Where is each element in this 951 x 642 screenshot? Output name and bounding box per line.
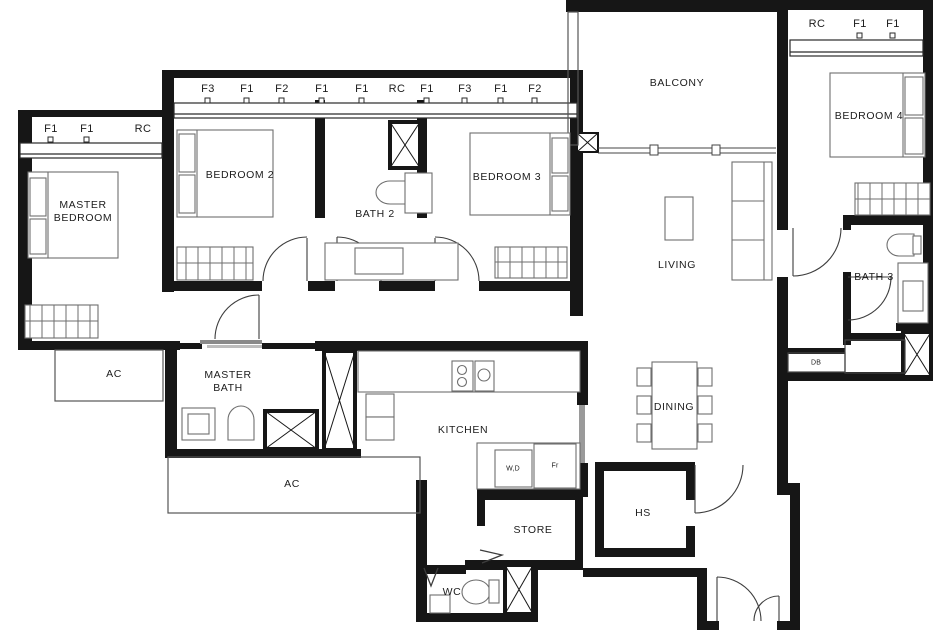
master-bath-sink-icon bbox=[182, 408, 215, 440]
floorplan-linework bbox=[0, 0, 951, 642]
bedroom3-wardrobe-icon bbox=[495, 247, 567, 278]
bedroom2-bed-icon bbox=[177, 130, 273, 217]
bath2-vanity-icon bbox=[405, 173, 432, 213]
master-bath-toilet-icon bbox=[228, 406, 254, 440]
floor-plan: MASTER BEDROOM BEDROOM 2 BATH 2 BEDROOM … bbox=[0, 0, 951, 642]
dining-table-icon bbox=[652, 362, 697, 449]
kitchen-counter-icon bbox=[358, 351, 580, 440]
washer-dryer-icon bbox=[477, 443, 580, 489]
bedroom4-wardrobe-icon bbox=[855, 183, 930, 215]
wc-basin-icon bbox=[430, 595, 450, 613]
bath3-vanity-icon bbox=[898, 263, 928, 323]
bedroom3-bed-icon bbox=[470, 133, 570, 215]
walls bbox=[18, 0, 933, 630]
sofa-icon bbox=[732, 162, 772, 280]
bedroom4-bed-icon bbox=[830, 73, 925, 157]
bath3-toilet-icon bbox=[887, 234, 921, 256]
window-ticks bbox=[48, 33, 895, 142]
bedroom2-wardrobe-icon bbox=[177, 247, 253, 280]
coffee-table-icon bbox=[665, 197, 693, 240]
master-bed-icon bbox=[28, 172, 118, 258]
master-wardrobe-icon bbox=[25, 305, 98, 338]
balcony-slider bbox=[598, 145, 776, 155]
bath2-tub-icon bbox=[325, 243, 458, 280]
wc-toilet-icon bbox=[462, 580, 499, 604]
bath2-toilet-icon bbox=[376, 181, 406, 204]
